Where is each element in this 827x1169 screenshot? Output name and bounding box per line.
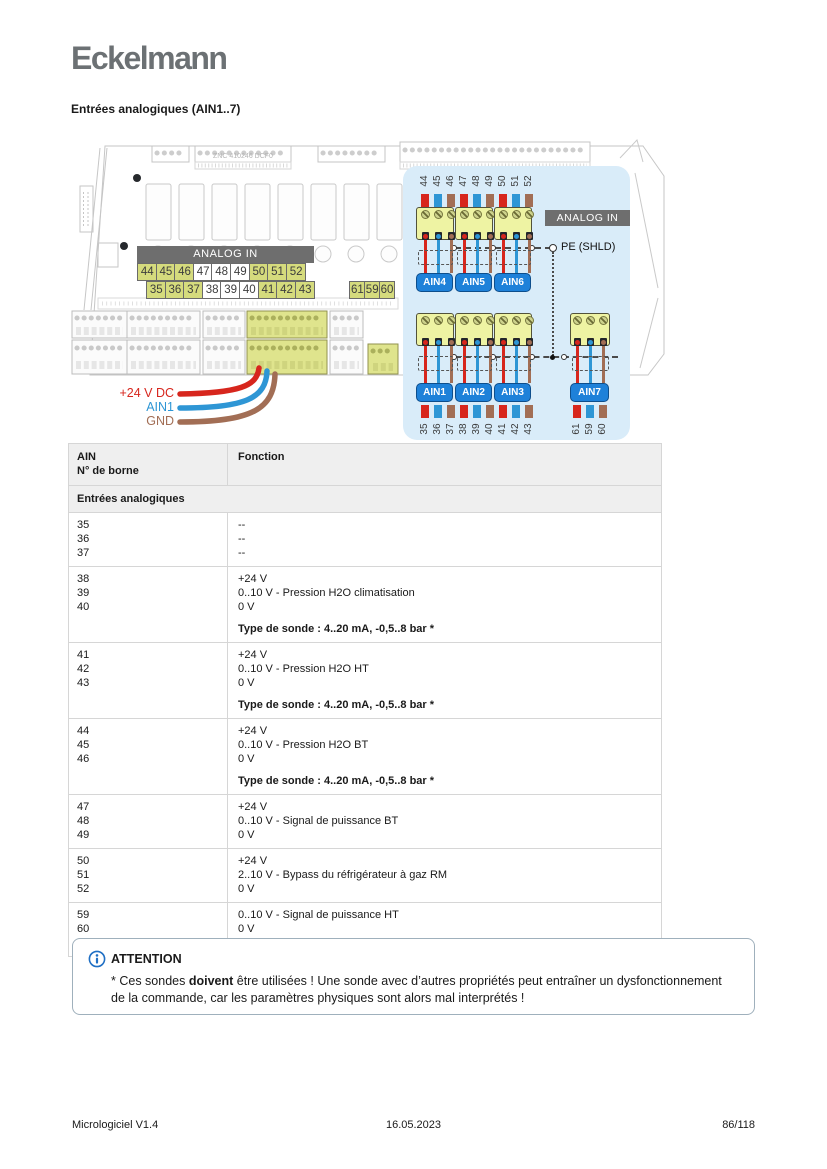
manual-page: Eckelmann Entrées analogiques (AIN1..7) <box>0 0 827 1169</box>
table-section-row: Entrées analogiques <box>69 485 661 512</box>
wire-dot <box>575 340 580 345</box>
shield-loop <box>572 356 609 371</box>
table-header-row: AIN N° de borne Fonction <box>69 444 661 485</box>
terminal-number: 39 <box>471 417 483 441</box>
terminal-number: 35 <box>419 417 431 441</box>
function-line: 0 V <box>238 676 651 690</box>
terminal-number: 43 <box>523 417 535 441</box>
wire-dot <box>514 340 519 345</box>
terminal-number-line: 42 <box>77 662 219 676</box>
wire-dot <box>475 234 480 239</box>
wire-gnd <box>180 374 275 422</box>
terminal-cell-group: 353637 <box>69 513 227 566</box>
function-line: 0 V <box>238 828 651 842</box>
clamp <box>435 338 442 346</box>
clamp <box>461 338 468 346</box>
section-heading: Entrées analogiques (AIN1..7) <box>71 102 240 116</box>
terminal-number: 42 <box>510 417 522 441</box>
clamp <box>500 232 507 240</box>
terminal-cell-group: 414243 <box>69 643 227 718</box>
pe-terminal-node <box>549 244 557 252</box>
wire-dot <box>475 340 480 345</box>
terminal-number: 49 <box>484 169 496 193</box>
wire-dot <box>501 340 506 345</box>
function-line: 0 V <box>238 922 651 936</box>
table-row: 353637------ <box>69 512 661 566</box>
footer-version: Micrologiciel V1.4 <box>72 1119 300 1131</box>
terminal-number: 59 <box>584 417 596 441</box>
terminal-number-line: 41 <box>77 648 219 662</box>
pe-line-vertical <box>552 252 554 356</box>
screw <box>421 316 430 325</box>
wire-dot <box>449 340 454 345</box>
screw <box>586 316 595 325</box>
clamp <box>600 338 607 346</box>
function-line: 0 V <box>238 752 651 766</box>
footer-page-number: 86/118 <box>527 1119 755 1131</box>
screw <box>525 316 534 325</box>
terminal-color-code <box>421 194 429 207</box>
terminal-number-line: 44 <box>77 724 219 738</box>
terminal-number-line: 35 <box>77 518 219 532</box>
terminal-cell-group: 474849 <box>69 795 227 848</box>
screw <box>434 316 443 325</box>
sensor-type-note: Type de sonde : 4..20 mA, -0,5..8 bar * <box>238 698 651 712</box>
terminal-number: 48 <box>471 169 483 193</box>
screw <box>499 210 508 219</box>
terminal-color-code <box>447 194 455 207</box>
clamp <box>487 338 494 346</box>
terminal-number: 41 <box>497 417 509 441</box>
function-cell: +24 V0..10 V - Pression H2O climatisatio… <box>227 567 661 642</box>
terminal-number: 50 <box>497 169 509 193</box>
clamp <box>574 338 581 346</box>
terminal-color-code <box>486 194 494 207</box>
terminal-cell-group: 505152 <box>69 849 227 902</box>
function-line: +24 V <box>238 724 651 738</box>
terminal-number-line: 51 <box>77 868 219 882</box>
terminal-number: 40 <box>484 417 496 441</box>
wire-dot <box>462 340 467 345</box>
function-cell: +24 V0..10 V - Pression H2O HT0 VType de… <box>227 643 661 718</box>
wire-dot <box>488 340 493 345</box>
terminal-number-line: 36 <box>77 532 219 546</box>
function-cell: +24 V0..10 V - Signal de puissance BT0 V <box>227 795 661 848</box>
table-header-fonction: Fonction <box>227 444 661 485</box>
table-row: 505152+24 V2..10 V - Bypass du réfrigéra… <box>69 848 661 902</box>
sensor-type-note: Type de sonde : 4..20 mA, -0,5..8 bar * <box>238 774 651 788</box>
terminal-number-line: 45 <box>77 738 219 752</box>
table-row: 444546+24 V0..10 V - Pression H2O BT0 VT… <box>69 718 661 794</box>
section-label: Entrées analogiques <box>69 486 193 512</box>
table-header-ain: AIN N° de borne <box>69 444 227 485</box>
terminal-number-line: 47 <box>77 800 219 814</box>
terminal-number: 60 <box>597 417 609 441</box>
ain-label: AIN6 <box>494 273 531 292</box>
terminal-number-line: 52 <box>77 882 219 896</box>
terminal-number-line: 40 <box>77 600 219 614</box>
screw <box>599 316 608 325</box>
terminal-number: 52 <box>523 169 535 193</box>
shield-loop <box>496 356 531 371</box>
terminal-cell-group: 444546 <box>69 719 227 794</box>
terminal-color-code <box>499 194 507 207</box>
shield-loop <box>457 356 492 371</box>
wire-dot <box>488 234 493 239</box>
terminal-number-line: 46 <box>77 752 219 766</box>
terminal-number: 46 <box>445 169 457 193</box>
screw <box>421 210 430 219</box>
function-line: +24 V <box>238 854 651 868</box>
terminal-number-line: 39 <box>77 586 219 600</box>
clamp <box>526 232 533 240</box>
connection-wires <box>180 368 275 422</box>
table-row: 383940+24 V0..10 V - Pression H2O climat… <box>69 566 661 642</box>
function-line: +24 V <box>238 800 651 814</box>
terminal-color-code <box>460 194 468 207</box>
attention-body: * Ces sondes doivent être utilisées ! Un… <box>111 973 739 1007</box>
header-line: Fonction <box>238 450 651 464</box>
terminal-cell-group: 383940 <box>69 567 227 642</box>
clamp <box>474 232 481 240</box>
clamp <box>474 338 481 346</box>
terminal-number: 47 <box>458 169 470 193</box>
table-row: 414243+24 V0..10 V - Pression H2O HT0 VT… <box>69 642 661 718</box>
terminal-number-line: 59 <box>77 908 219 922</box>
clamp <box>526 338 533 346</box>
function-cell: +24 V0..10 V - Pression H2O BT0 VType de… <box>227 719 661 794</box>
terminal-number-line: 38 <box>77 572 219 586</box>
function-line: -- <box>238 532 651 546</box>
wire-dot <box>423 234 428 239</box>
function-cell: ------ <box>227 513 661 566</box>
ain-label: AIN2 <box>455 383 492 402</box>
function-line: 0..10 V - Signal de puissance BT <box>238 814 651 828</box>
screw <box>525 210 534 219</box>
screw <box>434 210 443 219</box>
function-line: 0..10 V - Pression H2O BT <box>238 738 651 752</box>
wire-dot <box>436 234 441 239</box>
clamp <box>487 232 494 240</box>
clamp <box>448 338 455 346</box>
clamp <box>461 232 468 240</box>
wire-dot <box>449 234 454 239</box>
screw <box>512 316 521 325</box>
screw <box>473 316 482 325</box>
function-line: -- <box>238 518 651 532</box>
wire-dot <box>436 340 441 345</box>
terminal-number: 51 <box>510 169 522 193</box>
header-line: AIN <box>77 450 219 464</box>
attention-text: * Ces sondes <box>111 974 189 988</box>
function-cell: +24 V2..10 V - Bypass du réfrigérateur à… <box>227 849 661 902</box>
function-line: 0..10 V - Pression H2O HT <box>238 662 651 676</box>
terminal-number: 61 <box>571 417 583 441</box>
function-line: -- <box>238 546 651 560</box>
wire-dot <box>462 234 467 239</box>
screw <box>499 316 508 325</box>
company-logo: Eckelmann <box>71 40 226 77</box>
terminal-number-line: 50 <box>77 854 219 868</box>
terminal-strip-row-lower <box>72 340 398 374</box>
terminal-function-table: AIN N° de borne Fonction Entrées analogi… <box>68 443 662 957</box>
terminal-color-code <box>473 194 481 207</box>
info-icon <box>88 950 106 973</box>
clamp <box>422 232 429 240</box>
terminal-number: 36 <box>432 417 444 441</box>
wire-dot <box>514 234 519 239</box>
clamp <box>500 338 507 346</box>
ain-label: AIN5 <box>455 273 492 292</box>
function-line: 2..10 V - Bypass du réfrigérateur à gaz … <box>238 868 651 882</box>
ain-label: AIN4 <box>416 273 453 292</box>
ain-label: AIN3 <box>494 383 531 402</box>
terminal-number-line: 49 <box>77 828 219 842</box>
terminal-number-line: 48 <box>77 814 219 828</box>
wire-dot <box>527 234 532 239</box>
clamp <box>422 338 429 346</box>
wire-dot <box>527 340 532 345</box>
clamp <box>513 338 520 346</box>
wire-dot <box>601 340 606 345</box>
terminal-number: 45 <box>432 169 444 193</box>
clamp <box>587 338 594 346</box>
clamp <box>435 232 442 240</box>
shield-loop <box>457 250 492 265</box>
sensor-type-note: Type de sonde : 4..20 mA, -0,5..8 bar * <box>238 622 651 636</box>
terminal-strip-row-upper <box>72 311 363 338</box>
wire-dot <box>501 234 506 239</box>
ain-label: AIN7 <box>570 383 609 402</box>
function-line: +24 V <box>238 648 651 662</box>
terminal-number: 37 <box>445 417 457 441</box>
function-line: 0 V <box>238 600 651 614</box>
function-line: 0 V <box>238 882 651 896</box>
page-footer: Micrologiciel V1.4 16.05.2023 86/118 <box>72 1119 755 1131</box>
wire-dot <box>588 340 593 345</box>
mounting-bolt <box>120 242 128 250</box>
attention-title: ATTENTION <box>111 952 182 966</box>
terminal-number: 38 <box>458 417 470 441</box>
clamp <box>513 232 520 240</box>
shield-loop <box>418 250 453 265</box>
terminal-number-line: 37 <box>77 546 219 560</box>
screw <box>473 210 482 219</box>
wire-dot <box>423 340 428 345</box>
board-label: ZNC 410246 DCF0 <box>213 153 273 160</box>
footer-date: 16.05.2023 <box>300 1119 528 1131</box>
wiring-panel: ANALOG IN PE (SHLD) 444546474849505152AI… <box>403 166 630 440</box>
shield-loop <box>418 356 453 371</box>
function-line: 0..10 V - Signal de puissance HT <box>238 908 651 922</box>
function-line: 0..10 V - Pression H2O climatisation <box>238 586 651 600</box>
pe-shld-label: PE (SHLD) <box>561 241 615 253</box>
terminal-number: 44 <box>419 169 431 193</box>
pe-node <box>561 354 567 360</box>
pe-junction-dot <box>550 355 555 360</box>
analog-in-banner-panel: ANALOG IN <box>545 210 630 226</box>
function-line: +24 V <box>238 572 651 586</box>
screw <box>460 210 469 219</box>
attention-text-bold: doivent <box>189 974 233 988</box>
terminal-color-code <box>512 194 520 207</box>
terminal-color-code <box>525 194 533 207</box>
ain-label: AIN1 <box>416 383 453 402</box>
terminal-number-line: 43 <box>77 676 219 690</box>
table-row: 474849+24 V0..10 V - Signal de puissance… <box>69 794 661 848</box>
screw <box>460 316 469 325</box>
table-body: 353637------383940+24 V0..10 V - Pressio… <box>69 512 661 956</box>
header-line: N° de borne <box>77 464 219 478</box>
mounting-bolt <box>133 174 141 182</box>
screw <box>512 210 521 219</box>
clamp <box>448 232 455 240</box>
terminal-number-line: 60 <box>77 922 219 936</box>
screw <box>573 316 582 325</box>
shield-loop <box>496 250 531 265</box>
terminal-color-code <box>434 194 442 207</box>
attention-box: ATTENTION * Ces sondes doivent être util… <box>72 938 755 1015</box>
